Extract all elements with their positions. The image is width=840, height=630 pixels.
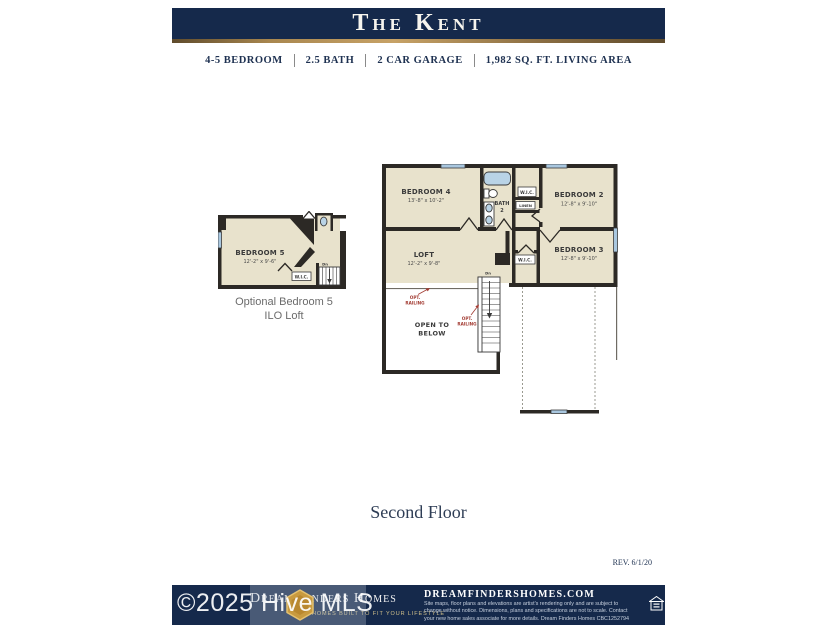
- bedroom5-label: BEDROOM 5: [235, 249, 284, 257]
- builder-website: DREAMFINDERSHOMES.COM: [424, 589, 595, 600]
- optional-plan-caption-line2: ILO Loft: [214, 309, 354, 323]
- spec-divider: [365, 54, 366, 67]
- floor-name-label: Second Floor: [172, 502, 665, 523]
- bedroom5-dims: 12'-2" x 9'-6": [243, 259, 276, 265]
- spec-garage: 2 CAR GARAGE: [377, 55, 462, 66]
- sink: [486, 216, 492, 224]
- bedroom2-label: BEDROOM 2: [554, 191, 603, 199]
- wic2-label: W.I.C.: [518, 257, 532, 262]
- footer-disclaimer: Site maps, floor plans and elevations ar…: [424, 601, 630, 623]
- stairs-dn-label: Dn: [322, 262, 328, 267]
- spec-summary-bar: 4-5 BEDROOM 2.5 BATH 2 CAR GARAGE 1,982 …: [172, 54, 665, 67]
- loft-dims: 12'-2" x 9'-8": [407, 261, 440, 267]
- opt-railing-label1: OPT.: [410, 295, 421, 300]
- bedroom4-label: BEDROOM 4: [401, 188, 450, 196]
- bedroom2-window: [546, 164, 567, 168]
- floorplan-flyer: The Kent 4-5 BEDROOM 2.5 BATH 2 CAR GARA…: [0, 0, 840, 630]
- bath-number: 2: [500, 208, 504, 214]
- bedroom3-label: BEDROOM 3: [554, 246, 603, 254]
- spec-divider: [294, 54, 295, 67]
- stairs-dn-label: Dn: [485, 271, 491, 276]
- watermark-text: ©2025 Hive MLS: [177, 589, 373, 618]
- toilet-fixture: [320, 217, 327, 226]
- plan-title: The Kent: [352, 10, 484, 37]
- revision-label: REV. 6/1/20: [452, 558, 652, 567]
- door-swing: [303, 212, 315, 219]
- opt-railing-label2b: RAILING: [457, 322, 477, 327]
- sink: [486, 204, 492, 212]
- bathtub: [484, 172, 511, 185]
- optional-bedroom5-plan: W.I.C. Dn BEDROOM 5 12'-2" x 9'-6": [218, 211, 352, 293]
- spec-bedrooms: 4-5 BEDROOM: [205, 55, 283, 66]
- spec-divider: [474, 54, 475, 67]
- opt-railing-label2: OPT.: [462, 316, 473, 321]
- spec-sqft: 1,982 SQ. FT. LIVING AREA: [486, 55, 632, 66]
- optional-plan-caption-line1: Optional Bedroom 5: [214, 295, 354, 309]
- wic-label: W.I.C.: [520, 190, 534, 195]
- opt-railing-line: [386, 288, 478, 289]
- bath-label: BATH: [495, 201, 510, 207]
- loft-label: LOFT: [414, 251, 435, 259]
- wic-label: W.I.C.: [295, 274, 309, 279]
- optional-plan-caption: Optional Bedroom 5 ILO Loft: [214, 295, 354, 323]
- bedroom4-dims: 13'-8" x 10'-2": [408, 198, 444, 204]
- banner-accent-line: [172, 39, 665, 43]
- equal-housing-icon: [649, 596, 664, 611]
- second-floor-plan: W.I.C. LINEN W.I.C. BEDROOM 4 13'-8" x 1…: [382, 164, 618, 414]
- open-to-below-label: OPEN TO: [415, 321, 450, 329]
- spec-baths: 2.5 BATH: [306, 55, 355, 66]
- garage-window: [551, 410, 567, 414]
- opt-railing-label1b: RAILING: [405, 301, 425, 306]
- bedroom4-window: [441, 164, 465, 168]
- side-window: [614, 228, 618, 252]
- linen-label: LINEN: [519, 203, 532, 208]
- open-to-below-label2: BELOW: [418, 330, 446, 338]
- plan-title-banner: The Kent: [172, 8, 665, 39]
- bedroom2-dims: 12'-8" x 9'-10": [561, 202, 597, 208]
- bedroom3-dims: 12'-8" x 9'-10": [561, 256, 597, 262]
- toilet-bowl: [489, 190, 498, 198]
- bedroom5-window: [218, 232, 222, 248]
